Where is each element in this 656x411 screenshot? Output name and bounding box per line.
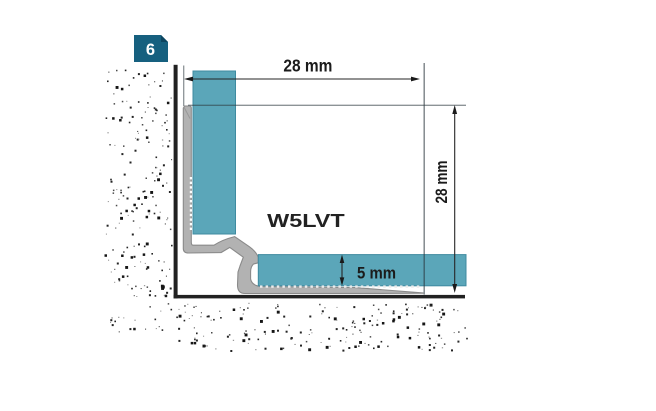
svg-text:6: 6 [146,41,155,59]
svg-text:5 mm: 5 mm [357,264,396,282]
svg-text:28 mm: 28 mm [283,56,332,76]
svg-text:28 mm: 28 mm [432,161,451,204]
svg-text:W5LVT: W5LVT [267,210,345,231]
